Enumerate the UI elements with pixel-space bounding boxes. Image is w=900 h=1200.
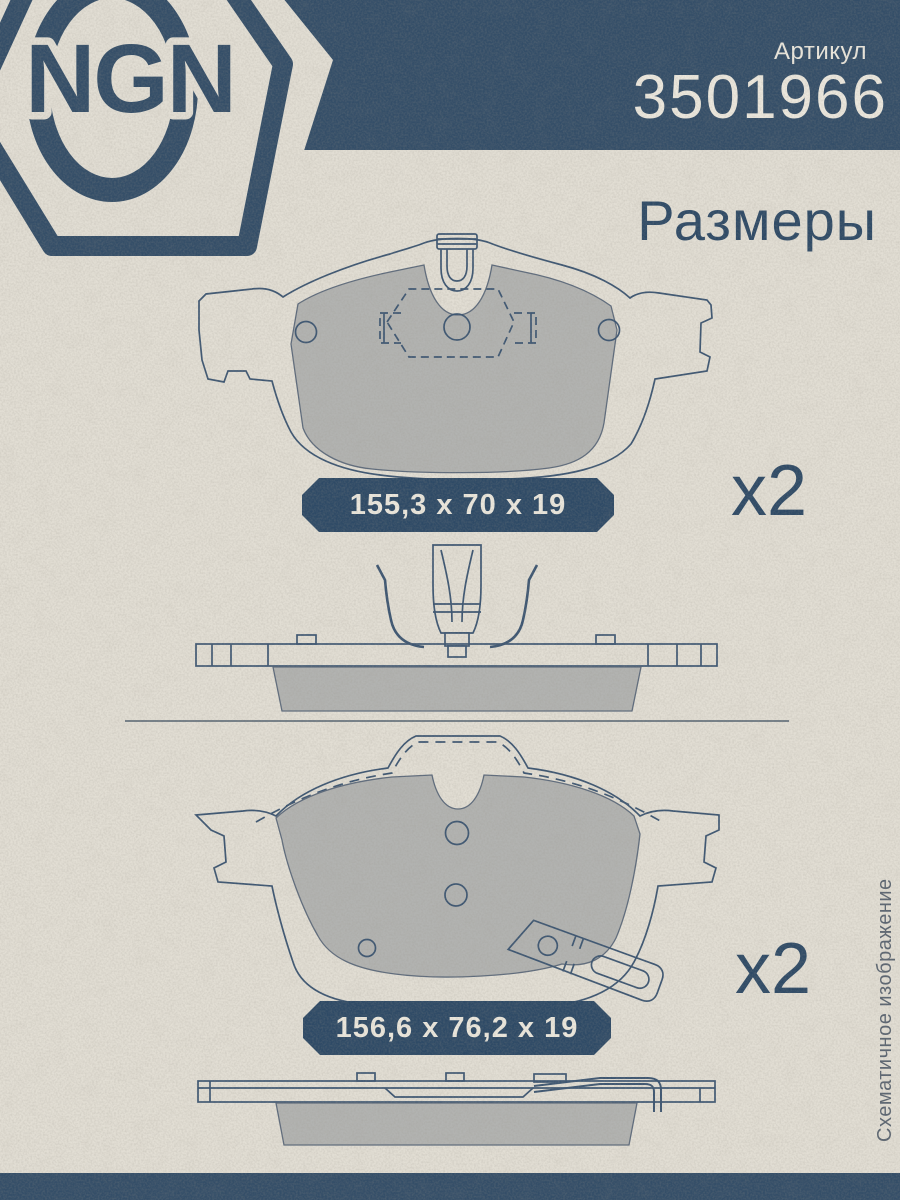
quantity-label-2: x2 [735, 933, 811, 1005]
quantity-label-1: x2 [731, 455, 807, 527]
dimension-badge-2: 156,6 x 76,2 x 19 [303, 1001, 611, 1055]
dimension-badge-1: 155,3 x 70 x 19 [302, 478, 614, 532]
brake-pad-front-view-1 [199, 234, 712, 480]
brake-pad-front-view-2 [196, 736, 719, 1010]
dimension-text-1: 155,3 x 70 x 19 [350, 489, 567, 522]
page-background: NGN Артикул 3501966 Размеры [0, 0, 900, 1200]
footnote-vertical-text: Схематичное изображение [874, 878, 897, 1142]
footer-band [0, 1173, 900, 1200]
dimension-text-2: 156,6 x 76,2 x 19 [336, 1012, 579, 1045]
brake-pad-side-view-1 [196, 545, 717, 711]
brake-pad-side-view-2 [198, 1073, 715, 1145]
